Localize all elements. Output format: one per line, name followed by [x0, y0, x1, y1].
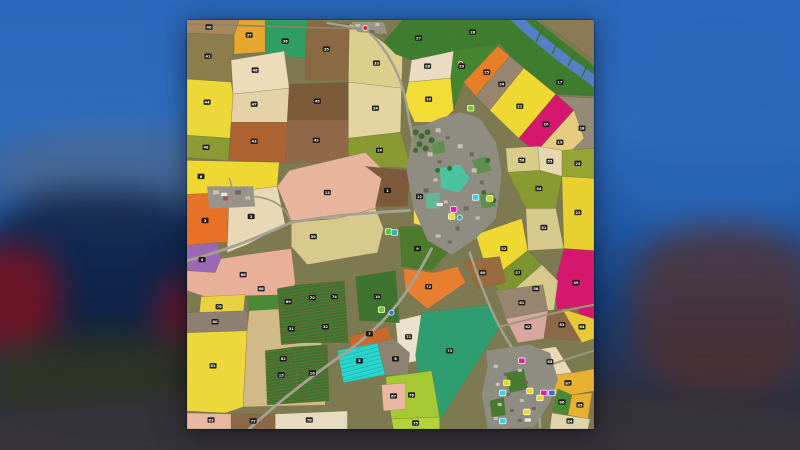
field-number-text: 84 — [567, 419, 573, 423]
field-number-text: 33 — [374, 62, 380, 66]
field-number-text: 58 — [533, 287, 539, 291]
field-number-text: 64 — [579, 325, 585, 329]
building — [424, 188, 429, 192]
field-number-text: 13 — [325, 191, 331, 195]
tree — [425, 129, 431, 135]
building — [223, 196, 228, 200]
field-number-text: 61 — [519, 301, 525, 305]
field-number-text: 81 — [211, 364, 217, 368]
poi-icon[interactable] — [500, 418, 506, 424]
field-number-text: 35 — [324, 47, 330, 51]
building — [496, 383, 500, 386]
field-number-text: 21 — [517, 105, 523, 109]
field-number-text: 66 — [241, 273, 247, 277]
field-number-text: 46 — [253, 69, 259, 73]
tree — [419, 133, 425, 139]
field-number-text: 23 — [575, 162, 581, 166]
field-number-text: 73 — [447, 349, 453, 353]
field-number-text: 44 — [205, 101, 211, 105]
poi-icon[interactable] — [504, 380, 510, 386]
field-number-text: 42 — [314, 139, 320, 143]
building — [494, 365, 498, 368]
field-number-text: 18 — [579, 127, 585, 131]
field-number-text: 10 — [375, 295, 381, 299]
field-number-text: 40 — [207, 25, 213, 29]
field-map-canvas[interactable]: 4041373635334647444845434234142728171826… — [187, 20, 594, 429]
building — [428, 152, 433, 156]
field-number-text: 62 — [525, 325, 531, 329]
poi-icon[interactable] — [524, 409, 530, 415]
field-number-text: 51 — [541, 226, 547, 230]
field-number-text: 54 — [536, 187, 542, 191]
field-number-text: 32 — [323, 325, 329, 329]
poi-icon[interactable] — [467, 105, 473, 111]
field-number-text: 22 — [575, 211, 581, 215]
field-number-text: 16 — [310, 371, 316, 375]
field-number-text: 60 — [480, 271, 486, 275]
tree — [423, 145, 429, 151]
field-polygon[interactable] — [187, 20, 239, 35]
poi-icon[interactable] — [385, 229, 391, 235]
game-screenshot: { "scene": { "background_sky_color": "#2… — [0, 0, 800, 450]
background-blur-right-sky — [620, 0, 800, 240]
info-badge — [436, 202, 443, 206]
field-number-text: 56 — [519, 159, 525, 163]
field-number-text: 45 — [315, 100, 321, 104]
building — [506, 393, 510, 396]
building — [235, 190, 241, 194]
building — [434, 178, 438, 181]
building — [476, 216, 480, 219]
building — [436, 128, 441, 132]
field-number-text: 29 — [459, 65, 465, 69]
field-number-text: 37 — [247, 33, 253, 37]
field-number-text: 20 — [543, 123, 549, 127]
building — [524, 381, 528, 384]
building — [504, 373, 508, 376]
field-polygon[interactable] — [231, 88, 289, 122]
building — [456, 227, 460, 231]
field-number-text: 78 — [307, 418, 313, 422]
field-number-text: 87 — [565, 381, 571, 385]
building — [494, 417, 498, 420]
tree — [413, 148, 418, 153]
field-number-text: 74 — [332, 295, 338, 299]
field-number-text: 12 — [417, 195, 423, 199]
field-number-text: 71 — [406, 335, 412, 339]
field-number-text: 82 — [281, 357, 287, 361]
building — [480, 180, 484, 184]
building — [375, 23, 379, 26]
poi-icon[interactable] — [500, 390, 506, 396]
building — [438, 160, 442, 163]
field-number-text: 83 — [209, 418, 215, 422]
field-number-text: 72 — [426, 285, 432, 289]
field-number-text: 63 — [559, 323, 565, 327]
field-number-text: 43 — [252, 140, 258, 144]
poi-icon[interactable] — [378, 307, 384, 313]
field-number-text: 41 — [206, 54, 212, 58]
field-number-text: 76 — [409, 393, 415, 397]
field-number-text: 65 — [547, 360, 553, 364]
info-badge — [221, 192, 228, 196]
poi-icon[interactable] — [363, 25, 368, 30]
building — [355, 24, 360, 27]
field-number-text: 47 — [252, 103, 258, 107]
poi-icon[interactable] — [537, 395, 543, 401]
building — [448, 241, 452, 244]
building — [518, 419, 522, 422]
building — [472, 168, 477, 172]
field-number-text: 49 — [573, 281, 579, 285]
field-map[interactable]: 4041373635334647444845434234142728171826… — [187, 20, 594, 429]
building — [470, 152, 474, 156]
field-number-text: 24 — [499, 83, 505, 87]
field-number-text: 70 — [310, 296, 316, 300]
field-number-text: 15 — [279, 373, 285, 377]
building — [464, 206, 469, 210]
building — [444, 200, 448, 203]
building — [245, 196, 250, 199]
field-number-text: 17 — [557, 81, 563, 85]
field-number-text: 34 — [373, 107, 379, 111]
field-polygon[interactable] — [187, 79, 233, 138]
field-number-text: 69 — [286, 300, 292, 304]
field-number-text: 36 — [283, 39, 289, 43]
building — [510, 409, 514, 412]
field-number-text: 79 — [217, 305, 223, 309]
field-number-text: 27 — [416, 36, 422, 40]
field-number-text: 26 — [425, 65, 431, 69]
field-number-text: 48 — [204, 146, 210, 150]
building — [520, 399, 524, 402]
field-number-text: 25 — [484, 71, 490, 75]
field-number-text: 30 — [426, 98, 432, 102]
field-number-text: 77 — [251, 419, 257, 423]
field-number-text: 86 — [559, 400, 565, 404]
poi-icon[interactable] — [519, 358, 525, 364]
tree — [429, 137, 435, 143]
field-number-text: 52 — [501, 247, 507, 251]
info-badge — [524, 418, 531, 422]
building — [532, 407, 536, 410]
field-number-text: 68 — [259, 287, 265, 291]
field-number-text: 85 — [577, 403, 583, 407]
poi-icon[interactable] — [457, 215, 462, 220]
poi-icon[interactable] — [549, 390, 555, 396]
building — [436, 235, 441, 238]
field-number-text: 14 — [377, 149, 383, 153]
poi-icon[interactable] — [450, 207, 456, 213]
poi-icon[interactable] — [487, 196, 493, 202]
field-number-text: 19 — [557, 141, 563, 145]
building — [446, 136, 450, 139]
building — [213, 190, 219, 194]
tree — [417, 141, 423, 147]
poi-icon[interactable] — [389, 310, 394, 315]
field-number-text: 59 — [311, 235, 317, 239]
field-polygon[interactable] — [187, 331, 247, 413]
tree — [481, 190, 486, 195]
field-polygon[interactable] — [229, 122, 287, 162]
field-number-text: 80 — [213, 320, 219, 324]
building — [369, 30, 374, 33]
poi-icon[interactable] — [448, 214, 454, 220]
poi-icon[interactable] — [473, 195, 479, 201]
field-number-text: 57 — [515, 271, 521, 275]
building — [498, 403, 502, 406]
field-number-text: 67 — [391, 394, 397, 398]
tree — [435, 168, 440, 173]
field-number-text: 31 — [289, 327, 295, 331]
poi-icon[interactable] — [527, 388, 533, 394]
tree — [413, 129, 419, 135]
background-blur-brown — [630, 225, 800, 395]
tree — [485, 158, 490, 163]
building — [458, 144, 463, 148]
field-number-text: 75 — [413, 421, 419, 425]
building — [518, 369, 522, 372]
tree — [447, 166, 452, 171]
field-number-text: 28 — [470, 30, 476, 34]
field-number-text: 55 — [547, 160, 553, 164]
poi-icon[interactable] — [391, 230, 397, 236]
